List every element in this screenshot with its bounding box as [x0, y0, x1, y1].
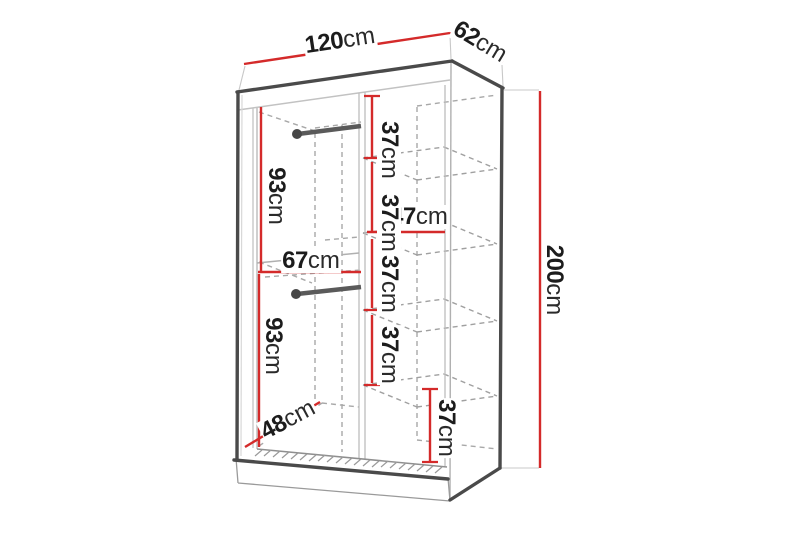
dim-label-shelf-37-5: 37cm: [434, 398, 458, 458]
dim-label-shelf-37-4: 37cm: [377, 325, 401, 385]
dim-label-height-200: 200cm: [542, 244, 566, 317]
dim-label-shelf-37-1: 37cm: [377, 120, 401, 180]
hanging-rail-top: [292, 126, 361, 139]
hanging-rail-bottom: [291, 287, 361, 299]
dim-label-shelf-37-2: 37cm: [377, 193, 401, 253]
dim-label-left-section-67: 67cm: [281, 249, 341, 273]
dim-label-hanging-top-93: 93cm: [264, 166, 288, 226]
dim-label-shelf-37-3: 37cm: [377, 254, 401, 314]
wardrobe-dimension-diagram: 120cm 62cm 200cm 93cm 93cm 67cm 47cm 48c…: [0, 0, 800, 533]
dim-label-hanging-bottom-93: 93cm: [261, 316, 285, 376]
